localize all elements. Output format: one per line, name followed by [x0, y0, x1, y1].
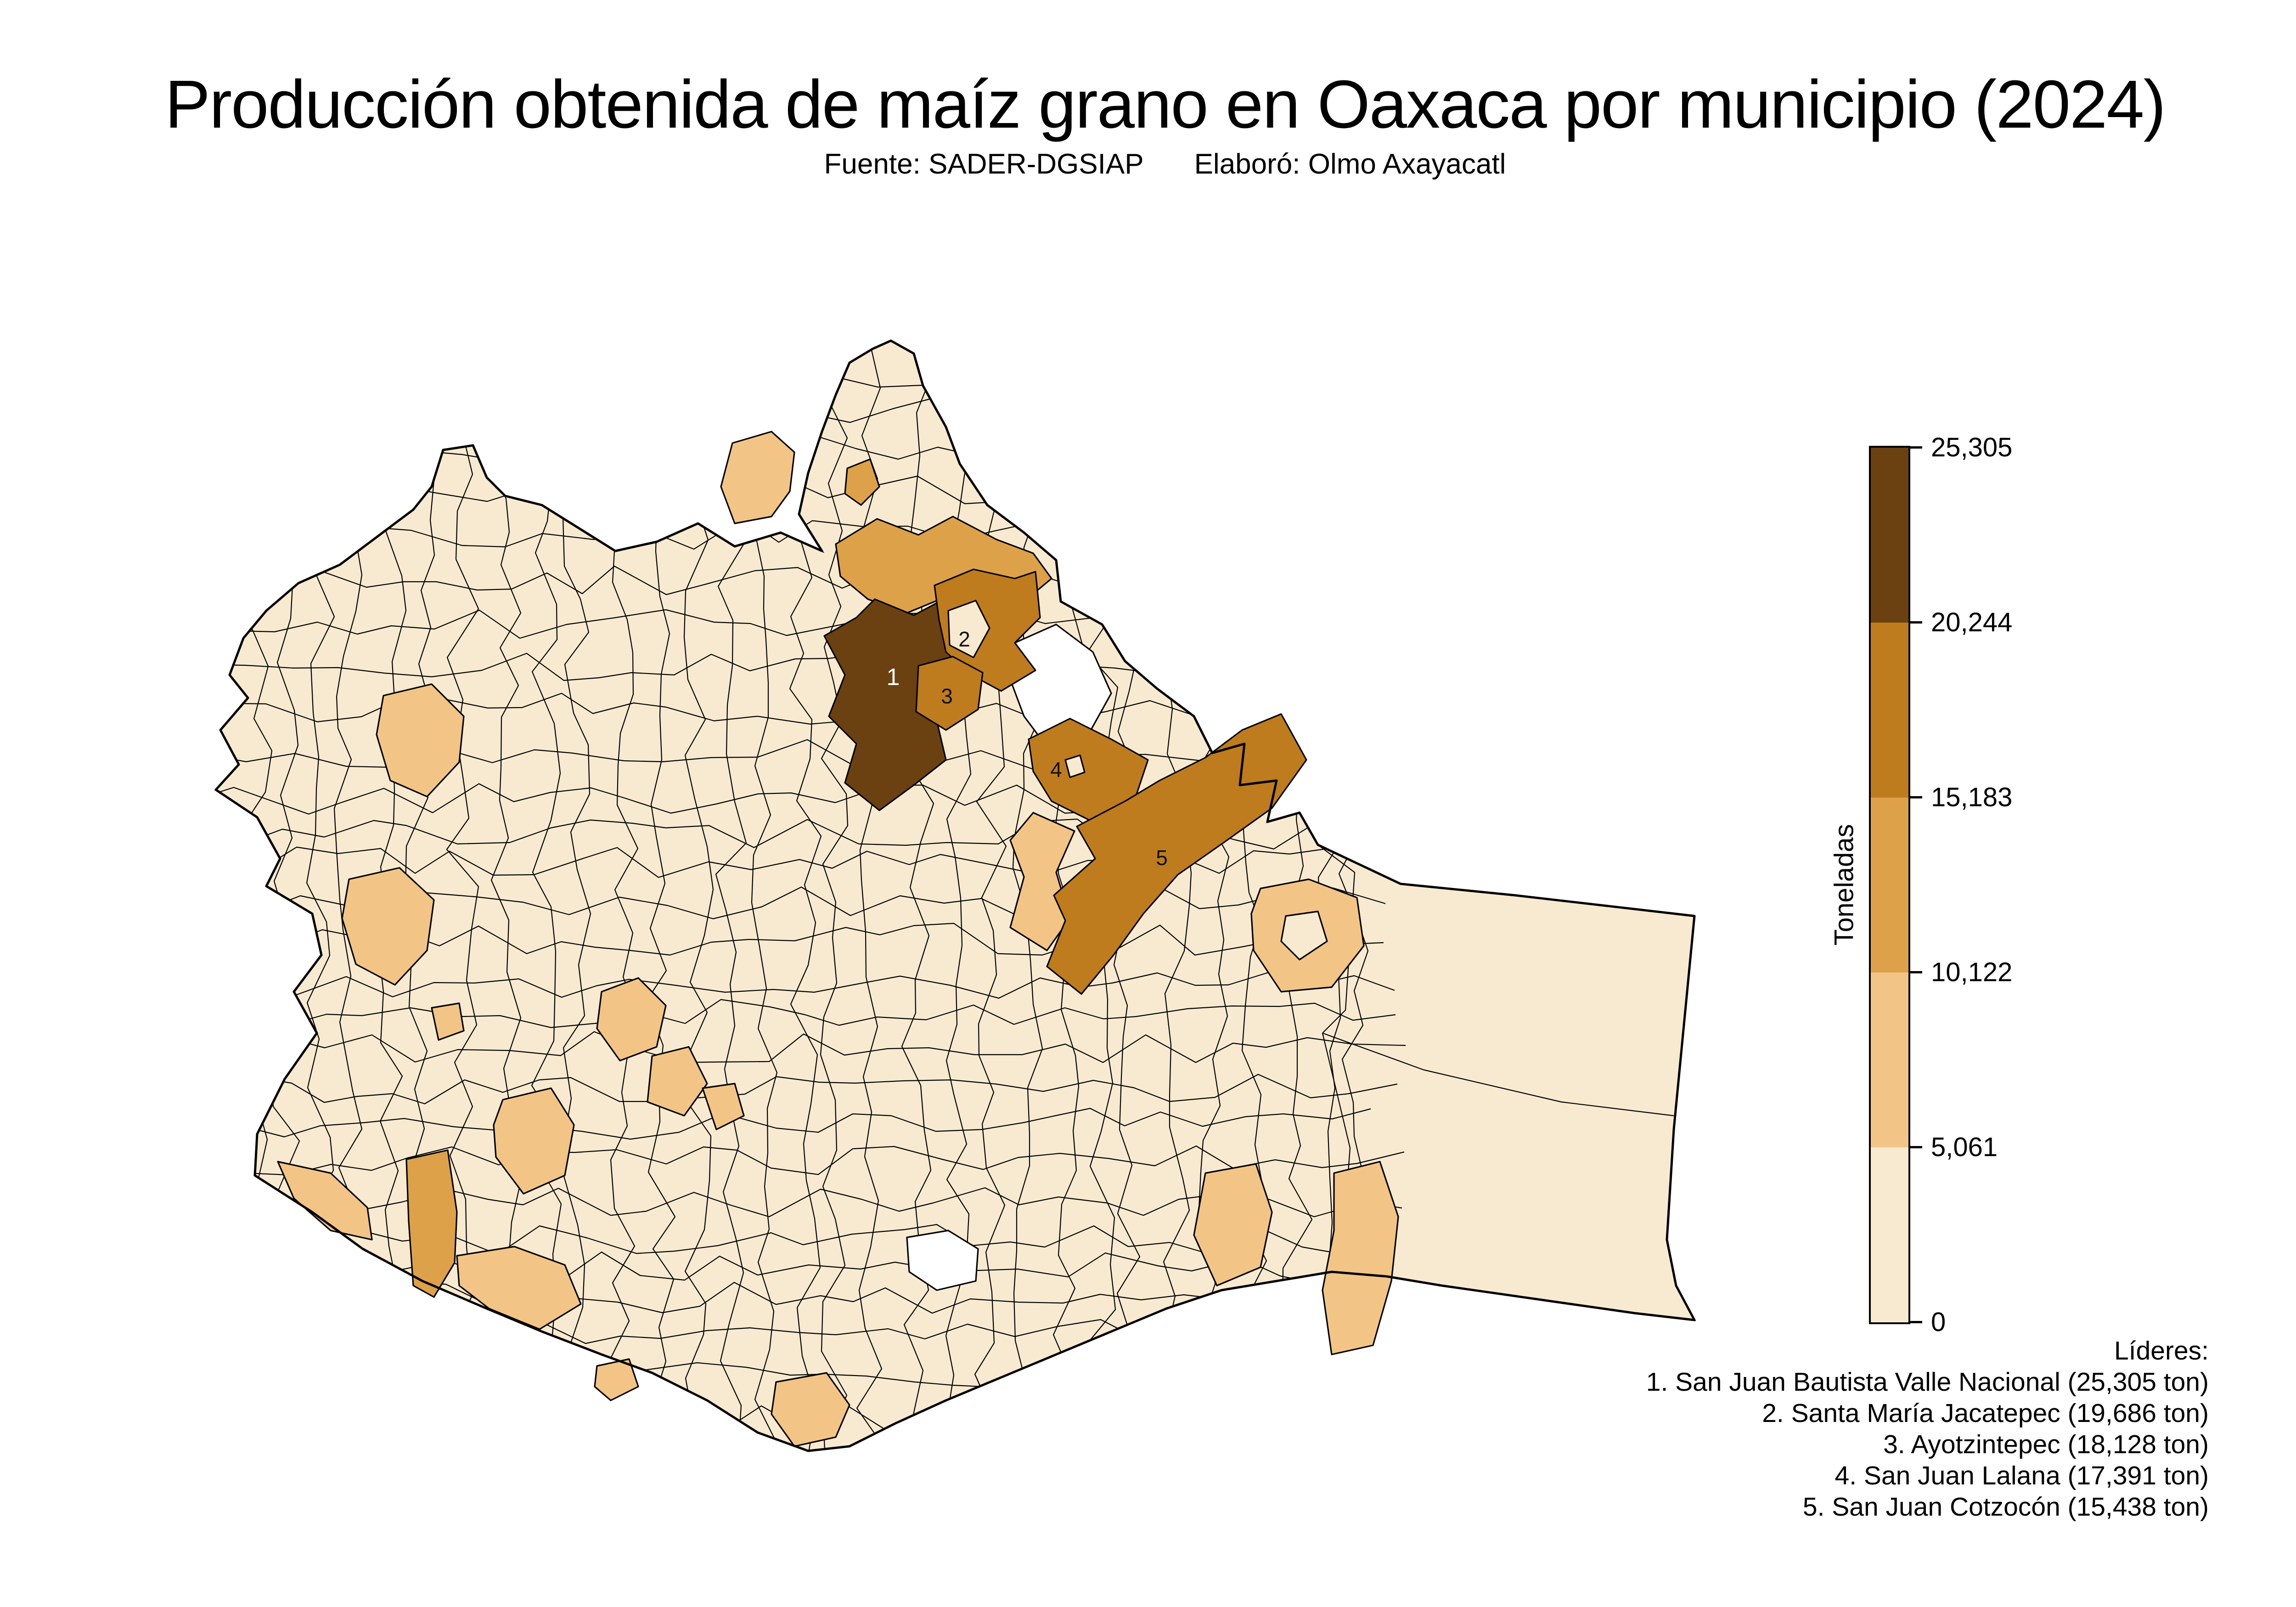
municipality-border-line: [241, 342, 272, 1501]
map-marker-5: 5: [1156, 846, 1168, 870]
municipality-border-line: [271, 342, 300, 1482]
colorbar-tick-mark: [1910, 446, 1922, 449]
colorbar-segment-4: [1871, 623, 1908, 798]
municipality-border-line: [197, 399, 1388, 430]
leader-item: 2. Santa María Jacatepec (19,686 ton): [1646, 1398, 2209, 1429]
municipality-patch: [1322, 1162, 1398, 1354]
colorbar-tick-label: 15,183: [1931, 782, 2012, 813]
colorbar: [1869, 446, 1910, 1324]
colorbar-axis-label: Toneladas: [1829, 824, 1860, 945]
colorbar-segment-1: [1871, 1147, 1908, 1322]
map-marker-4: 4: [1050, 758, 1062, 781]
colorbar-tick-mark: [1910, 1146, 1922, 1148]
colorbar-tick-mark: [1910, 621, 1922, 624]
municipality-border-line: [197, 356, 1407, 387]
leaders-list: Líderes: 1. San Juan Bautista Valle Naci…: [1646, 1335, 2209, 1523]
colorbar-segment-3: [1871, 798, 1908, 972]
colorbar-segment-5: [1871, 448, 1908, 623]
colorbar-tick-mark: [1910, 971, 1922, 973]
colorbar-segment-2: [1871, 972, 1908, 1147]
municipality-border-line: [200, 342, 229, 1484]
map-marker-3: 3: [941, 684, 953, 708]
leader-item: 4. San Juan Lalana (17,391 ton): [1646, 1460, 2209, 1491]
colorbar-tick-label: 10,122: [1931, 957, 2012, 988]
leader-item: 1. San Juan Bautista Valle Nacional (25,…: [1646, 1366, 2209, 1398]
colorbar-tick-label: 25,305: [1931, 432, 2012, 463]
colorbar-tick-mark: [1910, 796, 1922, 798]
leaders-heading: Líderes:: [1646, 1335, 2209, 1366]
municipality-patch: [721, 432, 794, 523]
colorbar-tick-label: 20,244: [1931, 607, 2012, 638]
colorbar-tick-mark: [1910, 1321, 1922, 1323]
map-marker-1: 1: [887, 664, 900, 691]
leader-item: 5. San Juan Cotzocón (15,438 ton): [1646, 1491, 2209, 1523]
figure-canvas: Producción obtenida de maíz grano en Oax…: [0, 0, 2296, 1607]
map-marker-2: 2: [958, 627, 970, 651]
colorbar-tick-label: 5,061: [1931, 1132, 1998, 1163]
leader-item: 3. Ayotzintepec (18,128 ton): [1646, 1429, 2209, 1460]
colorbar-tick-label: 0: [1931, 1307, 1946, 1338]
